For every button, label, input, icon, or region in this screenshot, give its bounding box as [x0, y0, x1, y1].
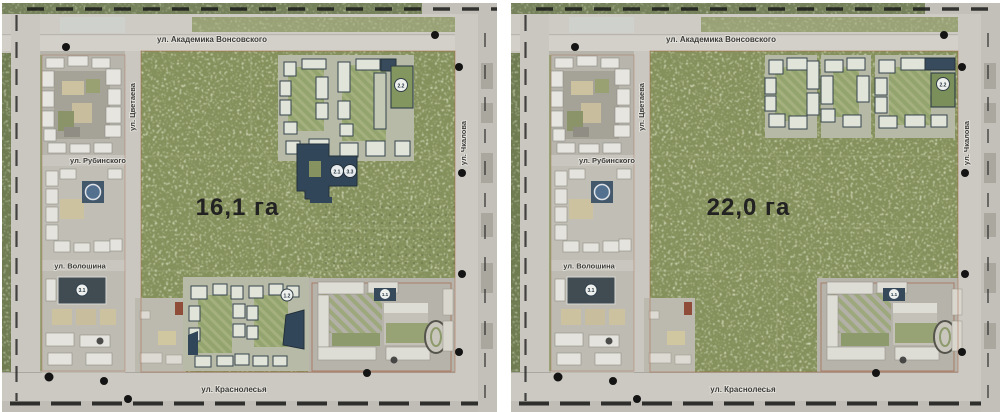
svg-text:2.2: 2.2 [940, 83, 947, 89]
svg-text:3.1: 3.1 [79, 288, 86, 294]
svg-text:1.1: 1.1 [382, 292, 389, 297]
svg-text:ул. Краснолесья: ул. Краснолесья [201, 385, 267, 394]
svg-text:1.2: 1.2 [284, 293, 291, 299]
svg-text:22,0 га: 22,0 га [707, 194, 791, 221]
svg-text:1.1: 1.1 [891, 292, 898, 297]
svg-text:ул. Академика Вонсовского: ул. Академика Вонсовского [157, 35, 267, 44]
svg-text:ул. Рубинского: ул. Рубинского [579, 156, 635, 165]
svg-text:2.1: 2.1 [334, 170, 341, 176]
svg-text:ул. Чкалова: ул. Чкалова [459, 120, 468, 165]
svg-text:ул. Рубинского: ул. Рубинского [70, 156, 126, 165]
svg-text:ул. Волошина: ул. Волошина [54, 262, 106, 271]
svg-text:ул. Краснолесья: ул. Краснолесья [710, 385, 776, 394]
svg-text:ул. Академика Вонсовского: ул. Академика Вонсовского [666, 35, 776, 44]
svg-text:3.3: 3.3 [347, 170, 354, 176]
svg-text:ул. Цветаева: ул. Цветаева [128, 82, 137, 131]
svg-text:ул. Волошина: ул. Волошина [563, 262, 615, 271]
svg-text:16,1 га: 16,1 га [196, 194, 280, 221]
svg-text:3.1: 3.1 [588, 288, 595, 294]
svg-text:2.2: 2.2 [398, 84, 405, 90]
svg-text:ул. Цветаева: ул. Цветаева [637, 82, 646, 131]
svg-text:ул. Чкалова: ул. Чкалова [962, 120, 971, 165]
